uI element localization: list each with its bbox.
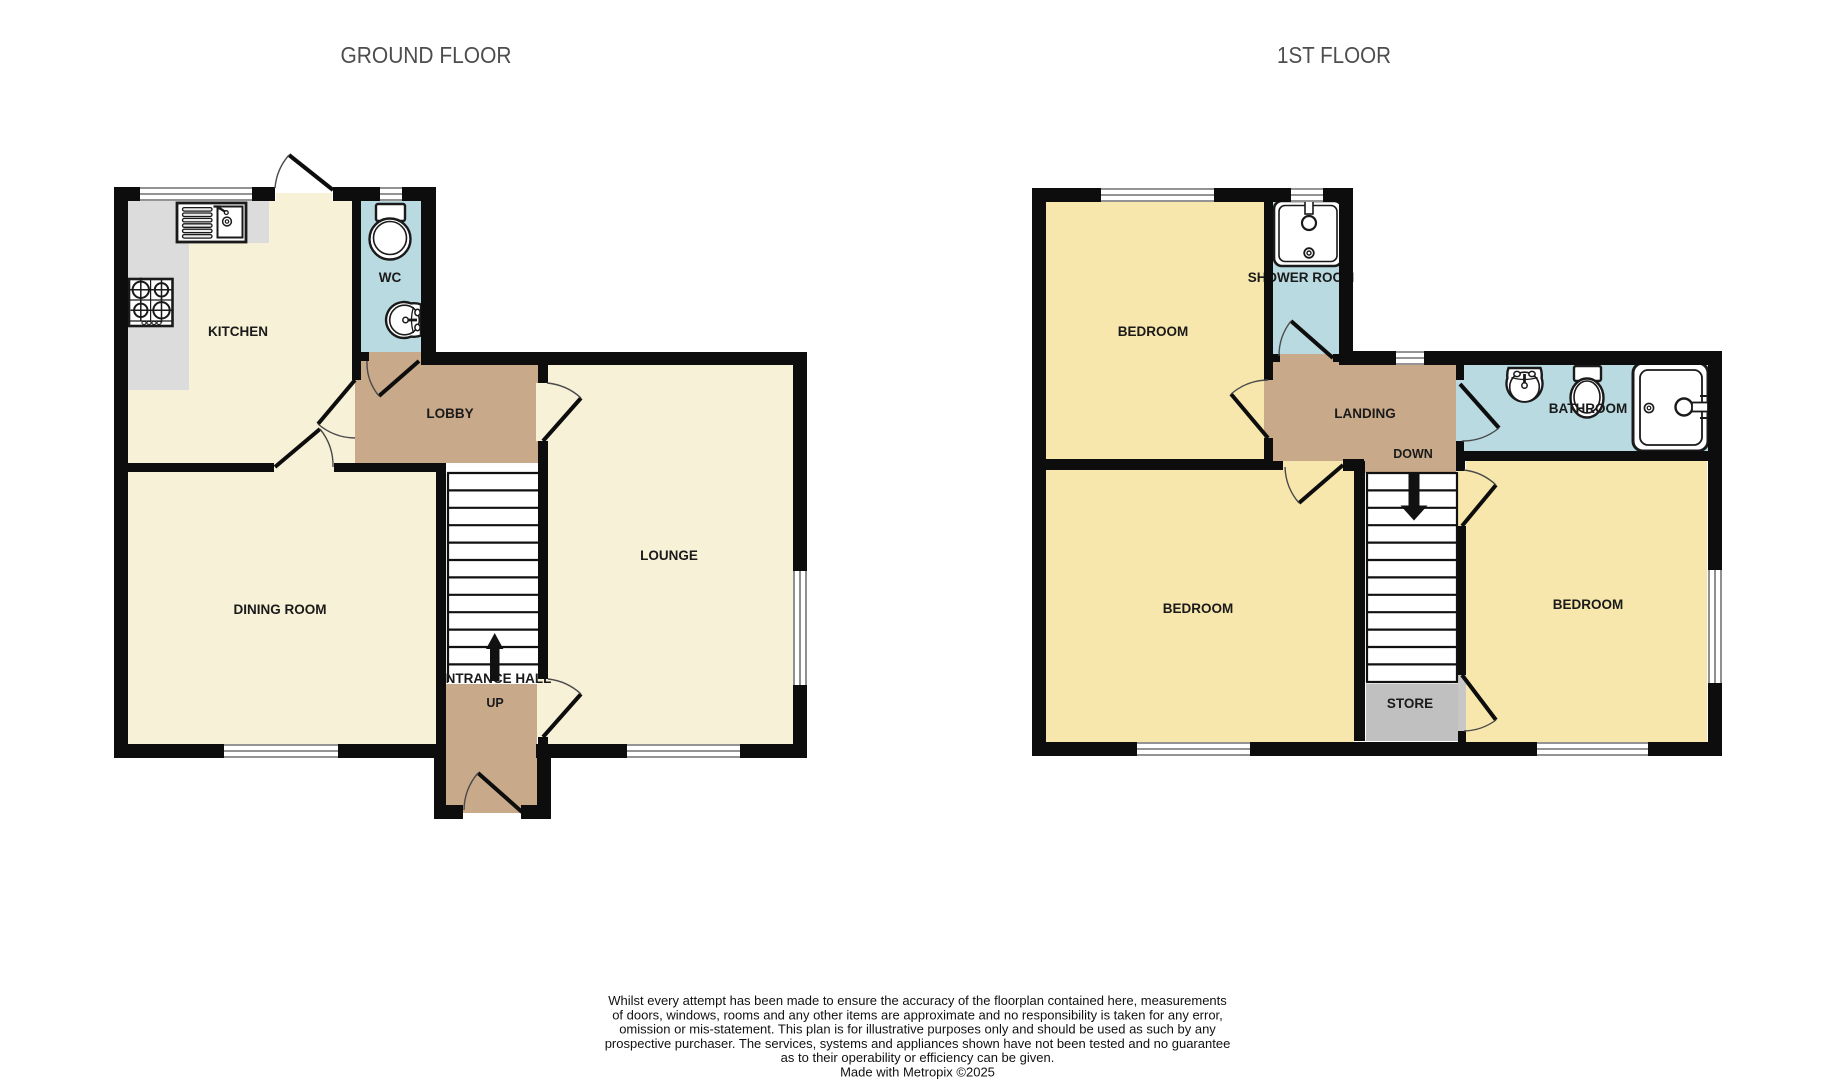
svg-text:of doors, windows, rooms and a: of doors, windows, rooms and any other i…: [612, 1007, 1223, 1022]
svg-text:STORE: STORE: [1387, 696, 1433, 711]
svg-text:LOBBY: LOBBY: [426, 406, 473, 421]
svg-text:UP: UP: [486, 696, 503, 710]
svg-text:WC: WC: [379, 270, 402, 285]
svg-text:BEDROOM: BEDROOM: [1118, 324, 1189, 339]
svg-text:KITCHEN: KITCHEN: [208, 324, 268, 339]
svg-text:LANDING: LANDING: [1334, 406, 1396, 421]
svg-text:DOWN: DOWN: [1393, 447, 1433, 461]
svg-text:as to their operability or eff: as to their operability or efficiency ca…: [781, 1050, 1055, 1065]
svg-text:prospective purchaser. The ser: prospective purchaser. The services, sys…: [605, 1036, 1231, 1051]
svg-text:omission or mis-statement. Thi: omission or mis-statement. This plan is …: [619, 1022, 1216, 1037]
svg-text:Made with Metropix ©2025: Made with Metropix ©2025: [840, 1064, 995, 1079]
svg-text:SHOWER ROOM: SHOWER ROOM: [1248, 270, 1355, 285]
svg-text:DINING ROOM: DINING ROOM: [234, 602, 327, 617]
svg-text:BEDROOM: BEDROOM: [1553, 597, 1624, 612]
svg-text:BATHROOM: BATHROOM: [1549, 401, 1628, 416]
svg-text:BEDROOM: BEDROOM: [1163, 601, 1234, 616]
svg-text:GROUND FLOOR: GROUND FLOOR: [341, 42, 512, 68]
svg-text:1ST FLOOR: 1ST FLOOR: [1277, 42, 1391, 68]
svg-text:LOUNGE: LOUNGE: [640, 548, 698, 563]
svg-text:Whilst every attempt has been: Whilst every attempt has been made to en…: [608, 993, 1227, 1008]
